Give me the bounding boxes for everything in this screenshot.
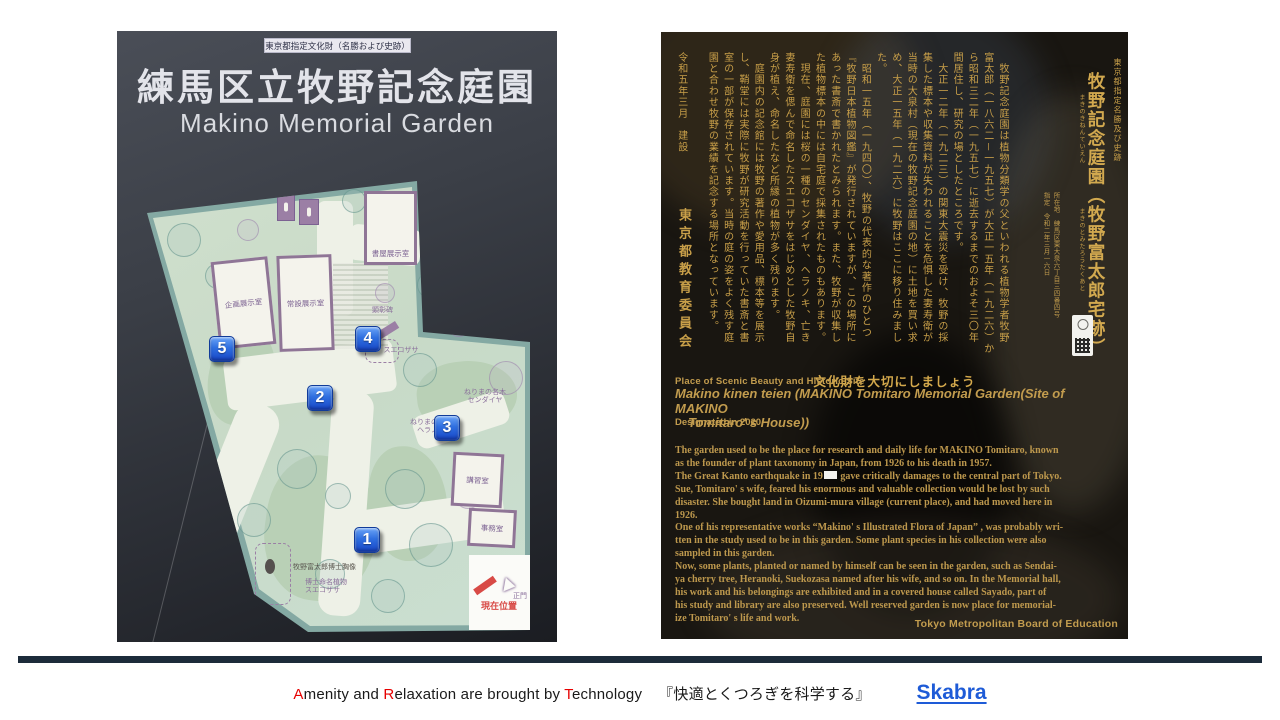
tree-icon: [409, 523, 453, 567]
building-jimu: 事務室: [467, 508, 517, 548]
sticker-logo-icon: [1077, 319, 1088, 330]
tree-icon: [447, 313, 471, 337]
plaque-board-japanese: 東京都教育委員会: [675, 208, 694, 352]
building-label: 企画展示室: [224, 296, 262, 311]
suekozasa-small-label: スエコザサ: [375, 347, 427, 355]
tagline-text: menity and: [304, 686, 384, 703]
sendaiya-label: ねりまの名木 センダイヤ: [455, 389, 515, 405]
bust-plot: [255, 543, 291, 605]
tree-icon: [385, 469, 425, 509]
english-body-part-b: gave critically damages to the central p…: [675, 471, 1063, 624]
plaque-designation-heading: 東京都指定名勝及び史跡: [1112, 58, 1123, 163]
tagline-text: elaxation are brought by: [394, 686, 564, 703]
suekozasa-label: 博士命名植物 スエコザサ: [305, 579, 375, 595]
tagline-initial-r: R: [383, 686, 394, 703]
toilet-icon: [277, 193, 295, 221]
tree-icon: [375, 283, 395, 303]
building-josetsu: 常設展示室: [276, 254, 334, 352]
english-designated: Designated in 2020: [675, 417, 761, 428]
tree-icon: [237, 503, 271, 537]
map-marker-4: 4: [355, 326, 381, 352]
current-position-label: 現在位置: [469, 599, 529, 612]
map-marker-5: 5: [209, 336, 235, 362]
bust-label: 牧野富太郎博士胸像: [293, 564, 393, 572]
bust-icon: [265, 559, 275, 574]
plaque-title-furigana-1: まきのきねんていえん: [1077, 94, 1086, 164]
banner-text: 東京都指定文化財（名勝および史跡）: [265, 40, 410, 52]
map-marker-1: 1: [354, 527, 380, 553]
monument-label: 顕彰碑: [372, 307, 393, 315]
tree-icon: [277, 449, 317, 489]
footer: Amenity and Relaxation are brought by Te…: [0, 676, 1280, 710]
english-board: Tokyo Metropolitan Board of Education: [915, 618, 1118, 630]
building-koshu: 講習室: [451, 452, 505, 509]
building-label: 常設展示室: [287, 297, 325, 309]
toilet-icon: [299, 199, 319, 225]
map-marker-2: 2: [307, 385, 333, 411]
building-shooku: 書屋展示室: [364, 191, 417, 265]
sign-title-japanese: 練馬区立牧野記念庭園: [117, 57, 557, 111]
footer-divider-bar: [18, 656, 1262, 663]
map-marker-3: 3: [434, 415, 460, 441]
tree-icon: [167, 223, 201, 257]
tagline-text: echnology: [572, 686, 642, 703]
garden-map-photo: 東京都指定文化財（名勝および史跡） 練馬区立牧野記念庭園 Makino Memo…: [117, 31, 557, 642]
page: 東京都指定文化財（名勝および史跡） 練馬区立牧野記念庭園 Makino Memo…: [0, 0, 1280, 720]
tagline-japanese: 『快適とくつろぎを科学する』: [658, 686, 870, 703]
skabra-link[interactable]: Skabra: [917, 681, 987, 705]
qr-code-icon: [1075, 338, 1090, 353]
building-label: 講習室: [466, 474, 489, 486]
plaque-location-info: 所在地 練馬区東大泉六丁目三四番四号 指定 令和二年三月一六日: [1040, 192, 1060, 352]
tree-icon: [417, 271, 445, 299]
tree-icon: [342, 189, 366, 213]
footer-tagline: Amenity and Relaxation are brought by Te…: [293, 683, 870, 704]
tree-icon: [423, 201, 453, 231]
tagline-initial-a: A: [293, 686, 303, 703]
tree-icon: [371, 579, 405, 613]
plaque-body-japanese: 牧野記念庭園は植物分類学の父といわれる植物学者牧野 富太郎（一八六二－一九五七）…: [673, 52, 1010, 372]
english-body: The garden used to be the place for rese…: [675, 445, 1123, 626]
tree-icon: [237, 219, 259, 241]
sign-title-english: Makino Memorial Garden: [117, 108, 557, 139]
plaque-photo: 東京都指定名勝及び史跡 牧野記念庭園（牧野富太郎宅跡） まきのきねんていえん ま…: [661, 32, 1128, 639]
qr-sticker: [1072, 315, 1093, 356]
building-label: 書屋展示室: [372, 248, 410, 259]
cultural-property-banner: 東京都指定文化財（名勝および史跡）: [264, 38, 411, 53]
plaque-title-furigana-2: まきのとみたろうたくあと: [1077, 208, 1086, 292]
tree-icon: [403, 353, 437, 387]
building-label: 事務室: [480, 522, 503, 534]
tree-icon: [325, 483, 351, 509]
tagline-initial-t: T: [564, 686, 572, 703]
correction-sticker: [824, 471, 837, 479]
